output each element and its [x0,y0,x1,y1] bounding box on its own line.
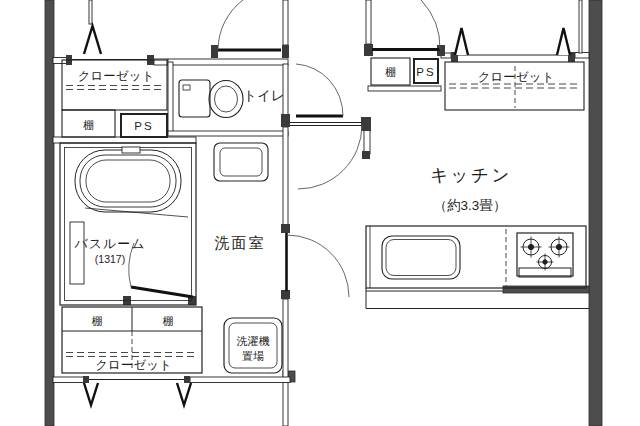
label-shelf-bottom-left: 棚 [92,315,103,327]
label-shelf-top-left: 棚 [83,119,94,131]
floor-plan: クローゼット 棚 PS トイレ 棚 PS クローゼット キッチン （約3.3畳）… [0,0,640,426]
wall-below-closet-right [190,377,290,383]
label-kitchen: キッチン [430,165,512,185]
label-closet-top-right: クローゼット [478,70,554,84]
bathtub-faucet [122,147,140,153]
label-ps-top-right: PS [416,66,435,78]
outer-wall-right [589,0,602,426]
label-washroom: 洗面室 [215,234,266,251]
wall-stub-top-left [89,0,92,24]
wall-below-closet-left [53,377,88,383]
label-ps-top-left: PS [134,120,153,132]
wall-kitchen-stub [364,130,370,154]
label-closet-top-left: クローゼット [78,69,154,83]
wall-washroom-right [283,127,288,226]
label-closet-bottom: クローゼット [95,358,171,372]
label-shelf-top-right: 棚 [385,66,396,78]
label-laundry-1: 洗濯機 [237,335,270,347]
label-shelf-bottom-right: 棚 [163,315,174,327]
label-laundry-2: 置場 [242,350,264,362]
wall-below-shelf-tr [368,86,441,91]
wall-toilet-bottom [168,131,288,136]
floor-plan-drawing: クローゼット 棚 PS トイレ 棚 PS クローゼット キッチン （約3.3畳）… [0,0,640,426]
label-kitchen-size: （約3.3畳） [434,198,507,213]
wall-under-stove [503,286,589,293]
wall-toilet-left [168,62,173,135]
wall-hall-right-top [366,0,371,44]
wall-stub-top-right [579,0,582,53]
wall-laundry-right [283,299,288,382]
wall-bottom-divider [283,382,288,426]
label-bathroom: バスルーム [73,236,145,251]
label-bathroom-size: (1317) [95,253,125,265]
wall-hall-left-top [283,0,288,45]
wall-toilet-top [168,59,288,65]
label-toilet: トイレ [243,88,284,103]
